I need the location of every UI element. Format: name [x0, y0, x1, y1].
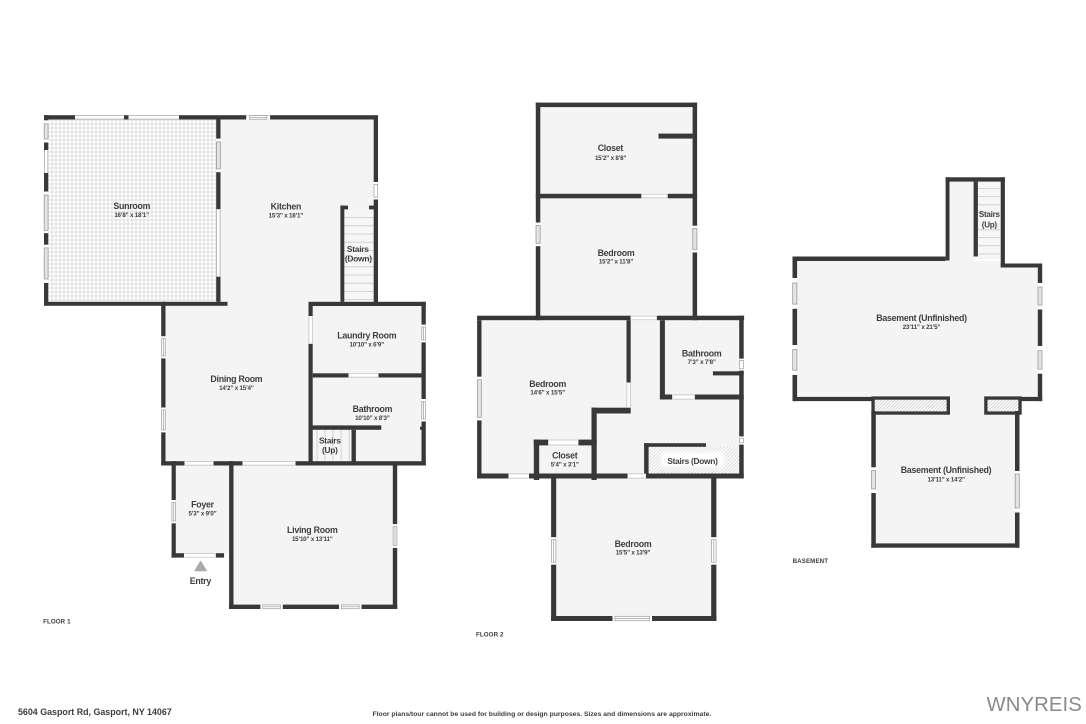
- svg-text:10’10” x 8’3”: 10’10” x 8’3”: [355, 415, 390, 422]
- svg-text:Bathroom: Bathroom: [682, 349, 722, 359]
- svg-text:WNYREIS: WNYREIS: [987, 694, 1082, 716]
- svg-text:Entry: Entry: [190, 576, 212, 586]
- svg-text:Kitchen: Kitchen: [271, 202, 302, 212]
- svg-text:16’8” x 18’1”: 16’8” x 18’1”: [114, 212, 149, 219]
- svg-text:15’10” x 13’11”: 15’10” x 13’11”: [292, 536, 333, 543]
- svg-text:Sunroom: Sunroom: [113, 201, 150, 211]
- svg-text:14’2” x 15’4”: 14’2” x 15’4”: [219, 385, 254, 392]
- svg-text:(Down): (Down): [345, 253, 372, 263]
- svg-text:Bathroom: Bathroom: [353, 404, 393, 414]
- svg-text:Foyer: Foyer: [191, 500, 215, 510]
- svg-text:Bedroom: Bedroom: [529, 379, 566, 389]
- svg-text:Dining Room: Dining Room: [210, 374, 262, 384]
- svg-text:Closet: Closet: [598, 143, 624, 153]
- svg-text:Living Room: Living Room: [287, 525, 338, 535]
- svg-text:15’2” x 11’8”: 15’2” x 11’8”: [599, 258, 633, 265]
- svg-text:5604 Gasport Rd, Gasport, NY 1: 5604 Gasport Rd, Gasport, NY 14067: [18, 707, 172, 717]
- svg-text:15’3” x 18’1”: 15’3” x 18’1”: [269, 213, 304, 220]
- svg-text:15’2” x 8’8”: 15’2” x 8’8”: [595, 155, 626, 162]
- svg-text:14’6” x 15’5”: 14’6” x 15’5”: [530, 389, 565, 396]
- svg-text:Stairs (Down): Stairs (Down): [667, 456, 718, 466]
- svg-text:Bedroom: Bedroom: [615, 539, 652, 549]
- svg-text:5’4” x 3’1”: 5’4” x 3’1”: [551, 462, 579, 469]
- svg-text:Stairs: Stairs: [979, 210, 1001, 219]
- svg-text:BASEMENT: BASEMENT: [793, 558, 829, 565]
- svg-text:15’5” x 13’9”: 15’5” x 13’9”: [616, 549, 651, 556]
- svg-text:13’11” x 14’2”: 13’11” x 14’2”: [927, 477, 965, 484]
- svg-text:Laundry Room: Laundry Room: [337, 331, 396, 341]
- svg-text:FLOOR 1: FLOOR 1: [43, 619, 71, 626]
- svg-text:Basement (Unfinished): Basement (Unfinished): [901, 465, 992, 475]
- svg-text:5’3” x 9’0”: 5’3” x 9’0”: [188, 511, 216, 518]
- svg-text:Bedroom: Bedroom: [598, 248, 635, 258]
- svg-text:Basement (Unfinished): Basement (Unfinished): [876, 313, 967, 323]
- svg-text:7’3” x 7’8”: 7’3” x 7’8”: [688, 359, 716, 366]
- svg-text:Closet: Closet: [552, 450, 578, 460]
- svg-text:Floor plans/tour cannot be use: Floor plans/tour cannot be used for buil…: [373, 711, 712, 718]
- svg-text:(Up): (Up): [982, 220, 998, 229]
- svg-text:(Up): (Up): [322, 445, 338, 455]
- svg-text:10’10” x 6’9”: 10’10” x 6’9”: [350, 342, 385, 349]
- svg-text:23’11” x 21’5”: 23’11” x 21’5”: [903, 324, 941, 331]
- svg-text:FLOOR 2: FLOOR 2: [476, 632, 504, 639]
